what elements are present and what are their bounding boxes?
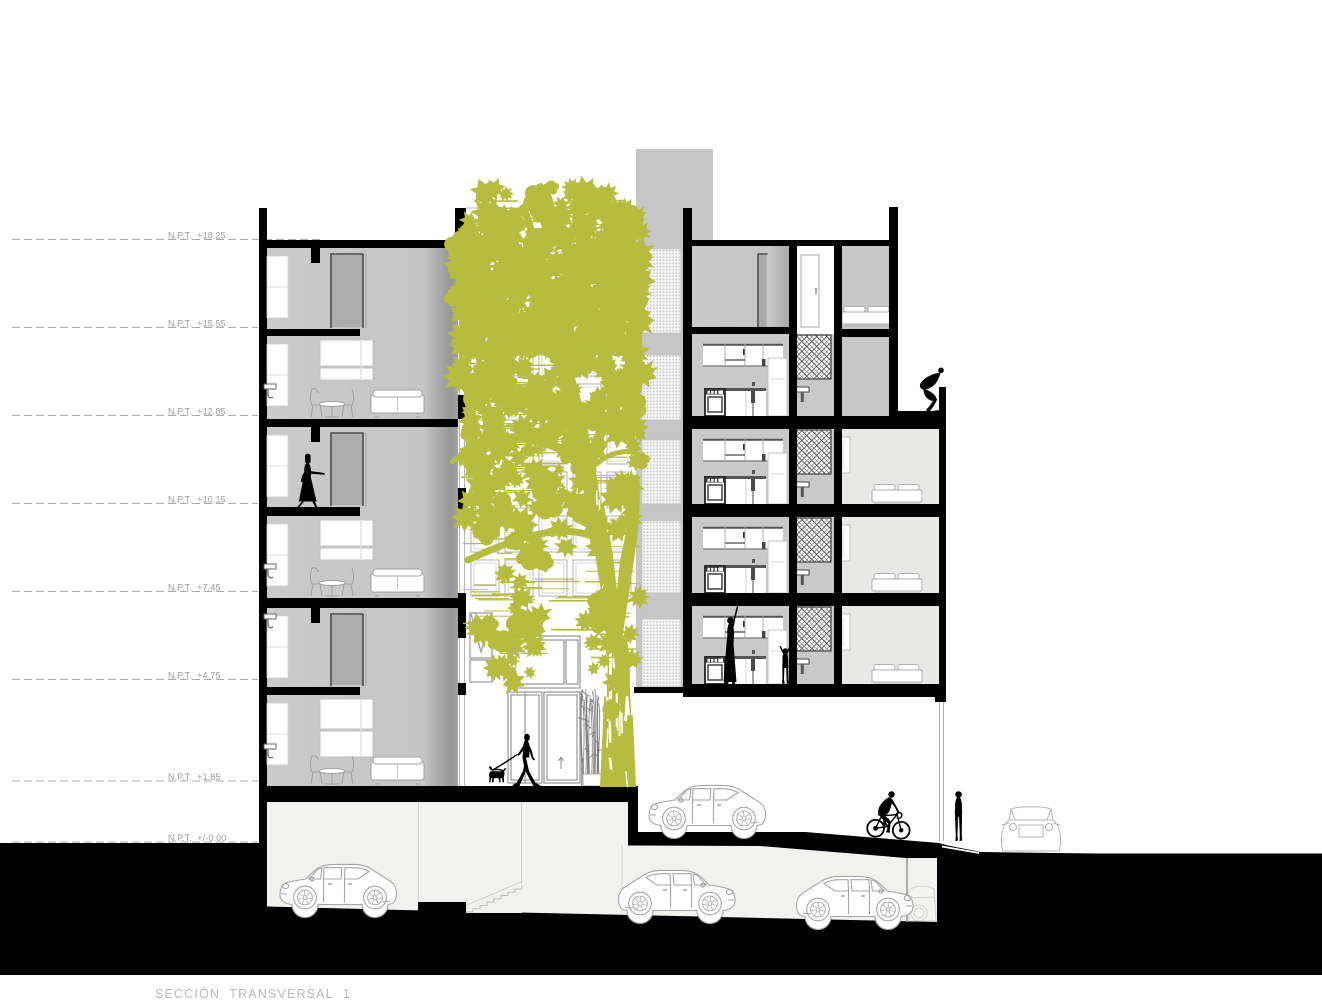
svg-text:N.P.T. +12.85: N.P.T. +12.85	[168, 407, 226, 417]
svg-text:N.P.T. +1.85: N.P.T. +1.85	[168, 772, 221, 782]
svg-text:N.P.T. +4.75: N.P.T. +4.75	[168, 671, 221, 681]
svg-text:N.P.T. +15.55: N.P.T. +15.55	[168, 319, 226, 329]
svg-text:SECCIÓN TRANSVERSAL 1: SECCIÓN TRANSVERSAL 1	[155, 986, 351, 1000]
svg-text:N.P.T. +18.25: N.P.T. +18.25	[168, 231, 226, 241]
svg-text:N.P.T. +7.45: N.P.T. +7.45	[168, 583, 221, 593]
svg-text:N.P.T. +/-0.00: N.P.T. +/-0.00	[168, 833, 226, 843]
svg-text:N.P.T. +10.15: N.P.T. +10.15	[168, 495, 226, 505]
